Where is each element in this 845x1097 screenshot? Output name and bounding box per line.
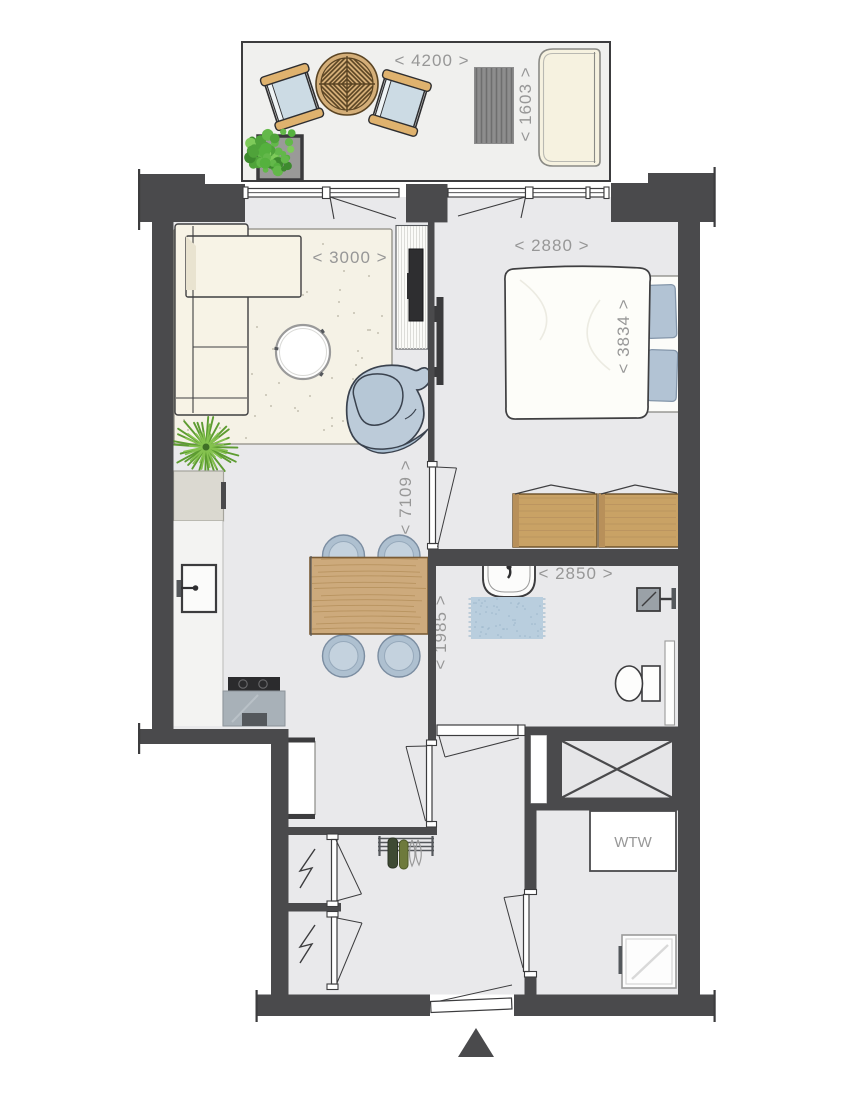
svg-text:WTW: WTW bbox=[614, 834, 652, 851]
svg-text:< 2850 >: < 2850 > bbox=[538, 564, 613, 583]
svg-text:< 3000 >: < 3000 > bbox=[312, 248, 387, 267]
svg-text:< 4200 >: < 4200 > bbox=[394, 51, 469, 70]
svg-text:< 2880 >: < 2880 > bbox=[514, 236, 589, 255]
svg-text:< 3834 >: < 3834 > bbox=[614, 298, 633, 373]
svg-text:< 1603 >: < 1603 > bbox=[516, 66, 535, 141]
svg-text:< 7109 >: < 7109 > bbox=[396, 459, 415, 534]
